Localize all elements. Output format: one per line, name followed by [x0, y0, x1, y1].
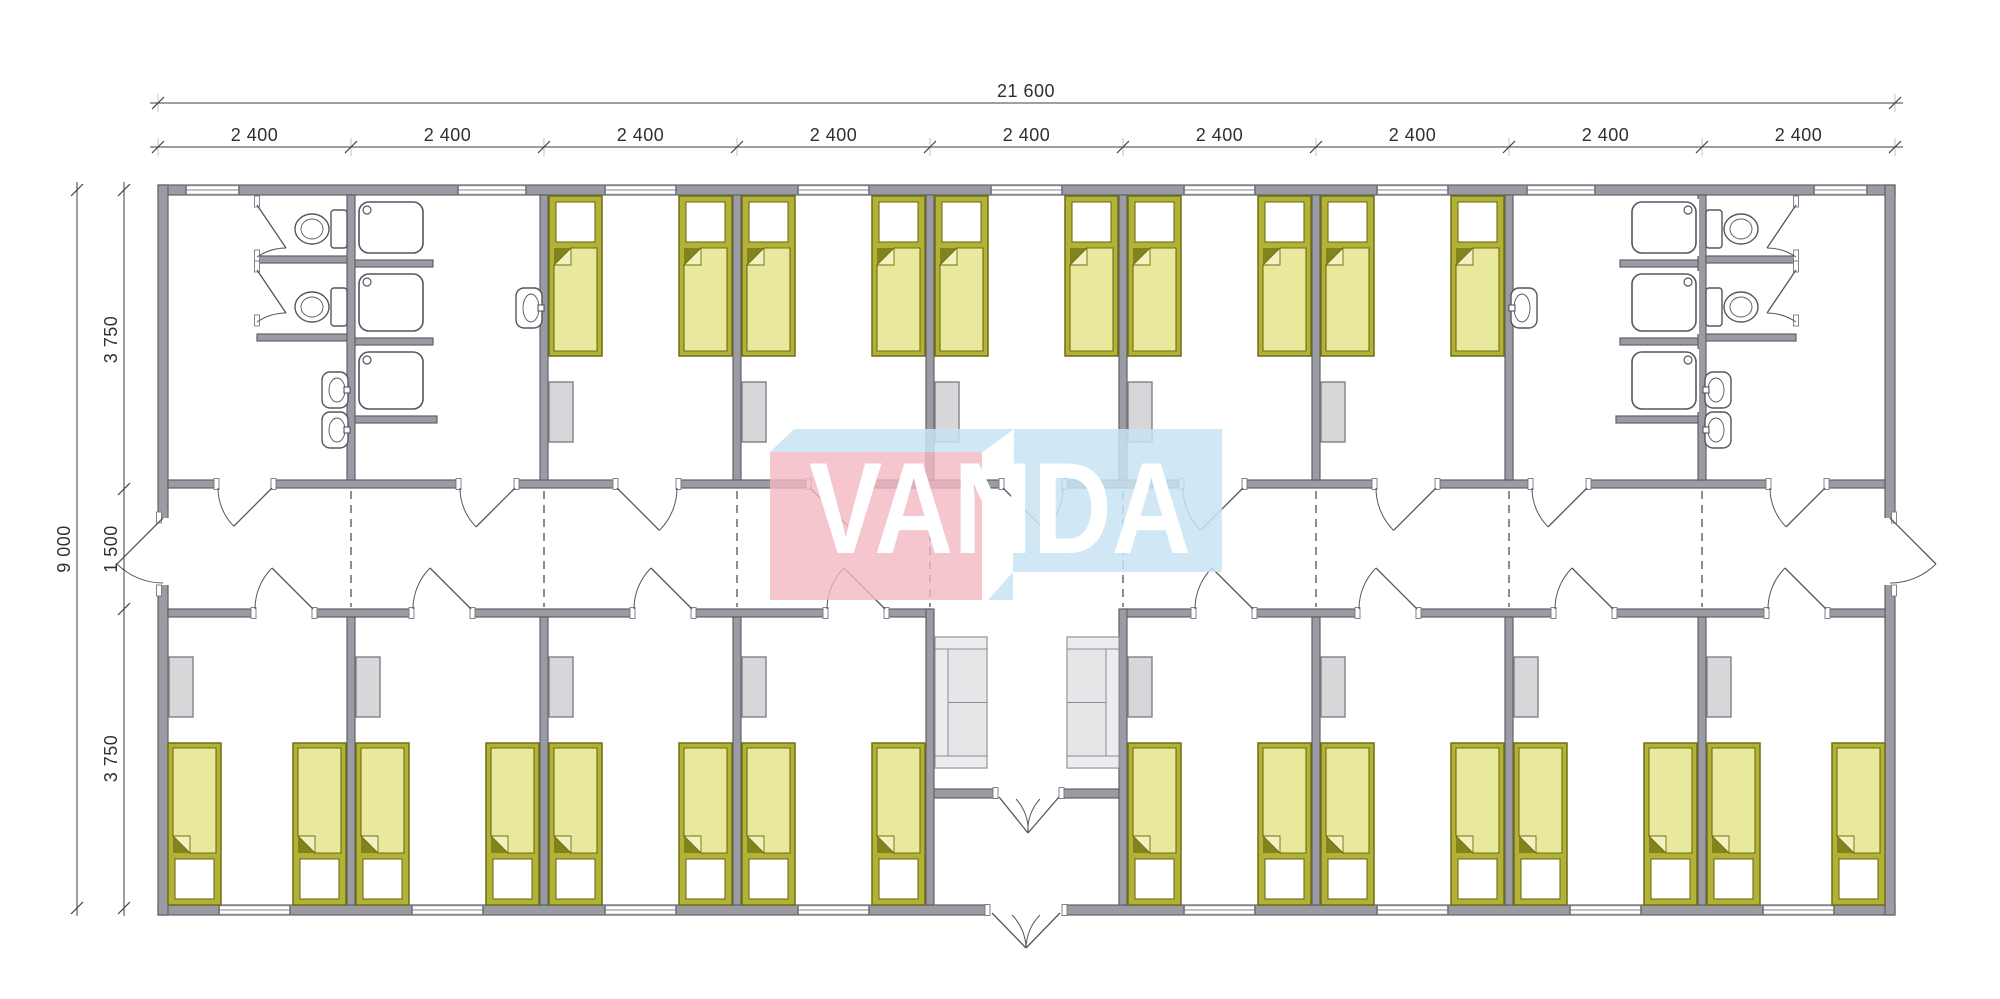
door-opening	[1376, 479, 1436, 489]
bed	[872, 196, 925, 356]
door-jamb-cap	[985, 905, 990, 916]
bed-pillow	[879, 202, 918, 242]
toilet	[295, 210, 347, 248]
bed	[742, 743, 795, 905]
dim-segment-label: 3 750	[101, 735, 121, 783]
wall	[1061, 789, 1127, 798]
door-jamb-cap	[1372, 479, 1377, 490]
watermark-text: VANDA	[809, 435, 1191, 581]
wardrobe	[1707, 657, 1731, 717]
dim-segment-label: 1 500	[101, 525, 121, 573]
bed	[935, 196, 988, 356]
wall	[257, 334, 351, 341]
dim-segment-label: 2 400	[1196, 125, 1244, 145]
bed-pillow	[1839, 859, 1878, 899]
bed-pillow	[686, 202, 725, 242]
door-opening	[1770, 479, 1825, 489]
bed	[1707, 743, 1760, 905]
wardrobe	[1321, 382, 1345, 442]
shower-drain	[1684, 356, 1692, 364]
wall	[1119, 609, 1127, 905]
toilet-bowl-inner	[301, 219, 323, 239]
bed-pillow	[1328, 859, 1367, 899]
toilet	[1706, 288, 1758, 326]
wall	[1312, 195, 1320, 480]
window	[1813, 185, 1868, 195]
dim-segment-label: 2 400	[231, 125, 279, 145]
bed	[168, 743, 221, 905]
dim-segment-label: 2 400	[424, 125, 472, 145]
window	[1526, 185, 1596, 195]
bed	[1258, 743, 1311, 905]
wardrobe	[549, 382, 573, 442]
sofa-armrest	[1067, 637, 1119, 649]
shower-drain	[363, 278, 371, 286]
window	[1569, 905, 1642, 915]
shower-drain	[363, 206, 371, 214]
wardrobe	[356, 657, 380, 717]
door-opening	[1359, 608, 1417, 618]
bed-pillow	[1328, 202, 1367, 242]
bed	[356, 743, 409, 905]
bed-pillow	[749, 202, 788, 242]
bed	[1514, 743, 1567, 905]
door-jamb-cap	[1764, 608, 1769, 619]
sink-bowl	[1708, 378, 1724, 402]
dim-segment-label: 2 400	[1389, 125, 1437, 145]
bed	[1451, 743, 1504, 905]
wall	[1616, 416, 1702, 423]
door-jamb-cap	[157, 585, 162, 596]
bed-pillow	[1458, 859, 1497, 899]
door-jamb-cap	[1191, 608, 1196, 619]
sofa	[935, 637, 987, 768]
door-jamb-cap	[456, 479, 461, 490]
window	[185, 185, 240, 195]
wall	[1702, 334, 1796, 341]
bed-pillow	[493, 859, 532, 899]
sink	[322, 412, 350, 448]
sink-bowl	[1514, 294, 1530, 322]
door-jamb-cap	[1766, 479, 1771, 490]
window	[1376, 185, 1449, 195]
bed	[1832, 743, 1885, 905]
sink-tap	[344, 387, 350, 393]
window	[797, 185, 870, 195]
bed	[1451, 196, 1504, 356]
bed-pillow	[1458, 202, 1497, 242]
bed-pillow	[1072, 202, 1111, 242]
window	[1183, 905, 1256, 915]
door-opening	[413, 608, 471, 618]
door-jamb-cap	[214, 479, 219, 490]
wardrobe	[742, 382, 766, 442]
door-jamb-cap	[1892, 585, 1897, 596]
bed-pillow	[879, 859, 918, 899]
shower-drain	[363, 356, 371, 364]
sink-bowl	[1708, 418, 1724, 442]
bed	[1321, 196, 1374, 356]
door-opening	[157, 518, 169, 585]
bed	[742, 196, 795, 356]
bed-pillow	[556, 859, 595, 899]
window	[1762, 905, 1835, 915]
sink-bowl	[329, 378, 345, 402]
wardrobe	[549, 657, 573, 717]
door-jamb-cap	[993, 788, 998, 799]
door-jamb-cap	[1062, 905, 1067, 916]
wall	[351, 260, 433, 267]
bed	[872, 743, 925, 905]
bed	[293, 743, 346, 905]
wall	[540, 195, 548, 480]
window	[990, 185, 1063, 195]
wall	[733, 617, 741, 905]
door-jamb-cap	[1355, 608, 1360, 619]
door-opening	[460, 479, 515, 489]
sink-tap	[1703, 427, 1709, 433]
shower	[356, 349, 426, 412]
sink	[1509, 288, 1537, 328]
door-jamb-cap	[409, 608, 414, 619]
sink	[322, 372, 350, 408]
dim-segment-label: 2 400	[1582, 125, 1630, 145]
dim-segment-label: 2 400	[617, 125, 665, 145]
door-opening	[827, 608, 885, 618]
bed	[1258, 196, 1311, 356]
sofa-armrest	[935, 637, 987, 649]
wall	[1505, 617, 1513, 905]
bed-pillow	[300, 859, 339, 899]
wall	[926, 789, 997, 798]
bed-pillow	[1265, 859, 1304, 899]
door-opening	[997, 788, 1061, 799]
sofa-armrest	[1067, 756, 1119, 768]
door-opening	[990, 904, 1062, 916]
wall	[1698, 617, 1706, 905]
toilet-tank	[331, 210, 347, 248]
toilet-tank	[1706, 288, 1722, 326]
bed	[679, 743, 732, 905]
bed	[1128, 743, 1181, 905]
sink	[1703, 372, 1731, 408]
bed	[1065, 196, 1118, 356]
dim-segment-label: 2 400	[810, 125, 858, 145]
shower	[356, 271, 426, 334]
dim-segment-label: 2 400	[1775, 125, 1823, 145]
sink-bowl	[523, 294, 539, 322]
door-opening	[218, 479, 272, 489]
door-opening	[1555, 608, 1613, 618]
toilet-bowl-inner	[301, 297, 323, 317]
bed-pillow	[686, 859, 725, 899]
sink-tap	[538, 305, 544, 311]
wall	[1505, 195, 1513, 480]
window	[411, 905, 484, 915]
wall	[733, 195, 741, 480]
door-jamb-cap	[1551, 608, 1556, 619]
bed-pillow	[175, 859, 214, 899]
window	[1183, 185, 1256, 195]
wall	[1702, 256, 1796, 263]
toilet-tank	[1706, 210, 1722, 248]
dim-segment-label: 2 400	[1003, 125, 1051, 145]
wardrobe	[742, 657, 766, 717]
wall	[540, 617, 548, 905]
floorplan-page: VANDA 21 600 9 000 2 4002 4002 4002 4002…	[0, 0, 2000, 999]
door-opening	[1884, 518, 1896, 585]
wardrobe	[169, 657, 193, 717]
bed-pillow	[1714, 859, 1753, 899]
bed-pillow	[363, 859, 402, 899]
shower	[356, 199, 426, 256]
bed-pillow	[749, 859, 788, 899]
window	[797, 905, 870, 915]
bed	[679, 196, 732, 356]
door-opening	[634, 608, 692, 618]
window	[457, 185, 527, 195]
window	[604, 905, 677, 915]
dim-segment-label: 3 750	[101, 316, 121, 364]
wardrobe	[1321, 657, 1345, 717]
door-opening	[1195, 608, 1253, 618]
window	[218, 905, 291, 915]
wardrobe	[1128, 657, 1152, 717]
floor-plan-drawing: VANDA 21 600 9 000 2 4002 4002 4002 4002…	[0, 0, 2000, 999]
door-jamb-cap	[1059, 788, 1064, 799]
wall	[257, 256, 351, 263]
wardrobe	[1514, 657, 1538, 717]
bed	[486, 743, 539, 905]
bed	[549, 743, 602, 905]
shower	[1629, 271, 1699, 334]
bed	[1644, 743, 1697, 905]
shower	[1629, 199, 1699, 256]
door-jamb-cap	[251, 608, 256, 619]
wall	[1620, 260, 1702, 267]
bed	[549, 196, 602, 356]
bed	[1321, 743, 1374, 905]
door-opening	[617, 479, 677, 489]
sink	[1703, 412, 1731, 448]
sofa-armrest	[935, 756, 987, 768]
bed-pillow	[1265, 202, 1304, 242]
bed-pillow	[1135, 202, 1174, 242]
window	[604, 185, 677, 195]
door-jamb-cap	[823, 608, 828, 619]
wall	[351, 338, 433, 345]
wall	[347, 617, 355, 905]
sink	[516, 288, 544, 328]
door-opening	[1532, 479, 1587, 489]
sink-tap	[344, 427, 350, 433]
wall	[926, 609, 934, 905]
dim-total-width-label: 21 600	[997, 81, 1055, 101]
bed-pillow	[1651, 859, 1690, 899]
toilet-bowl-inner	[1730, 297, 1752, 317]
toilet	[1706, 210, 1758, 248]
door-opening	[1768, 608, 1826, 618]
sofa-back	[1106, 649, 1119, 756]
door-opening	[255, 608, 313, 618]
bed-pillow	[1135, 859, 1174, 899]
sink-bowl	[329, 418, 345, 442]
vanda-watermark: VANDA	[770, 429, 1222, 600]
toilet	[295, 288, 347, 326]
bed-pillow	[942, 202, 981, 242]
sink-tap	[1509, 305, 1515, 311]
sofa-back	[935, 649, 948, 756]
shower	[1629, 349, 1699, 412]
shower-drain	[1684, 206, 1692, 214]
door-jamb-cap	[676, 479, 681, 490]
door-jamb-cap	[630, 608, 635, 619]
wall	[351, 416, 437, 423]
shower-drain	[1684, 278, 1692, 286]
door-jamb-cap	[1528, 479, 1533, 490]
bed-pillow	[1521, 859, 1560, 899]
sofa	[1067, 637, 1119, 768]
toilet-tank	[331, 288, 347, 326]
dim-total-height-label: 9 000	[54, 525, 74, 573]
wall	[1312, 617, 1320, 905]
bed-pillow	[556, 202, 595, 242]
wall	[1620, 338, 1702, 345]
sink-tap	[1703, 387, 1709, 393]
bed	[1128, 196, 1181, 356]
window	[1376, 905, 1449, 915]
toilet-bowl-inner	[1730, 219, 1752, 239]
